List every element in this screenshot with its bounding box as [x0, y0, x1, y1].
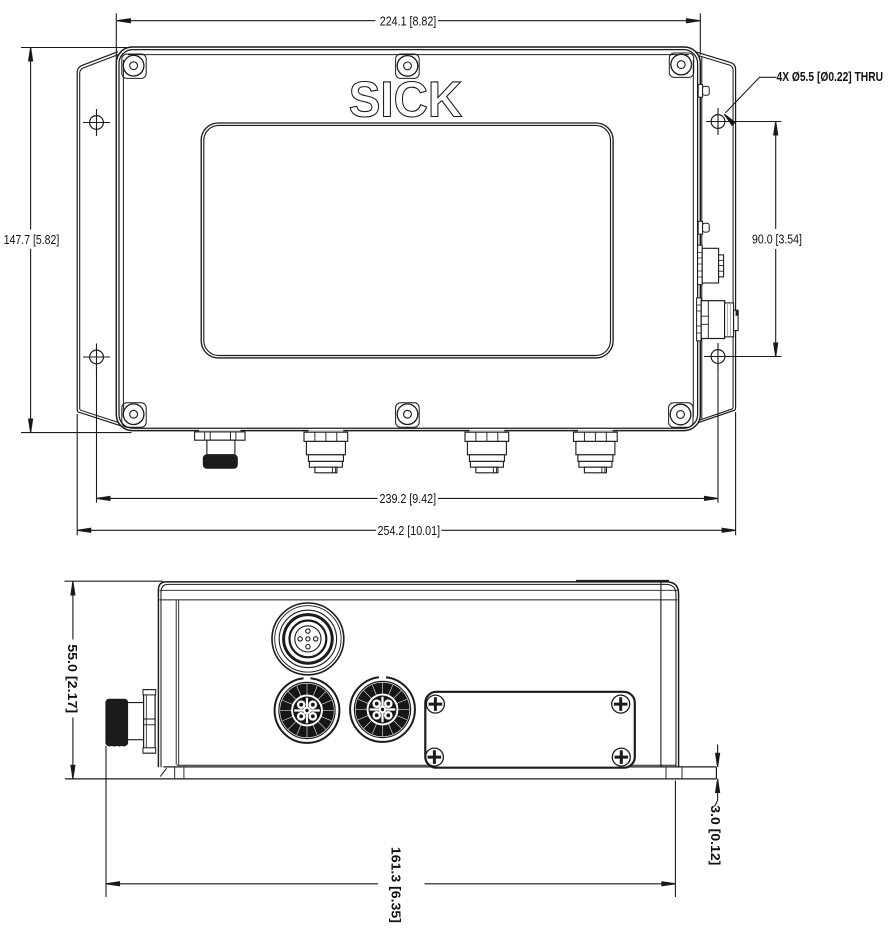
svg-text:3.0 [0.12]: 3.0 [0.12]: [708, 805, 723, 865]
svg-text:254.2 [10.01]: 254.2 [10.01]: [378, 523, 441, 538]
svg-text:239.2 [9.42]: 239.2 [9.42]: [380, 491, 437, 506]
svg-text:4X Ø5.5 [Ø0.22] THRU: 4X Ø5.5 [Ø0.22] THRU: [777, 69, 884, 84]
svg-text:55.0 [2.17]: 55.0 [2.17]: [65, 644, 80, 713]
svg-text:147.7 [5.82]: 147.7 [5.82]: [4, 232, 60, 247]
svg-text:90.0 [3.54]: 90.0 [3.54]: [752, 232, 802, 247]
svg-text:SICK: SICK: [349, 72, 463, 128]
svg-text:161.3 [6.35]: 161.3 [6.35]: [389, 847, 404, 923]
svg-text:224.1 [8.82]: 224.1 [8.82]: [380, 13, 437, 28]
